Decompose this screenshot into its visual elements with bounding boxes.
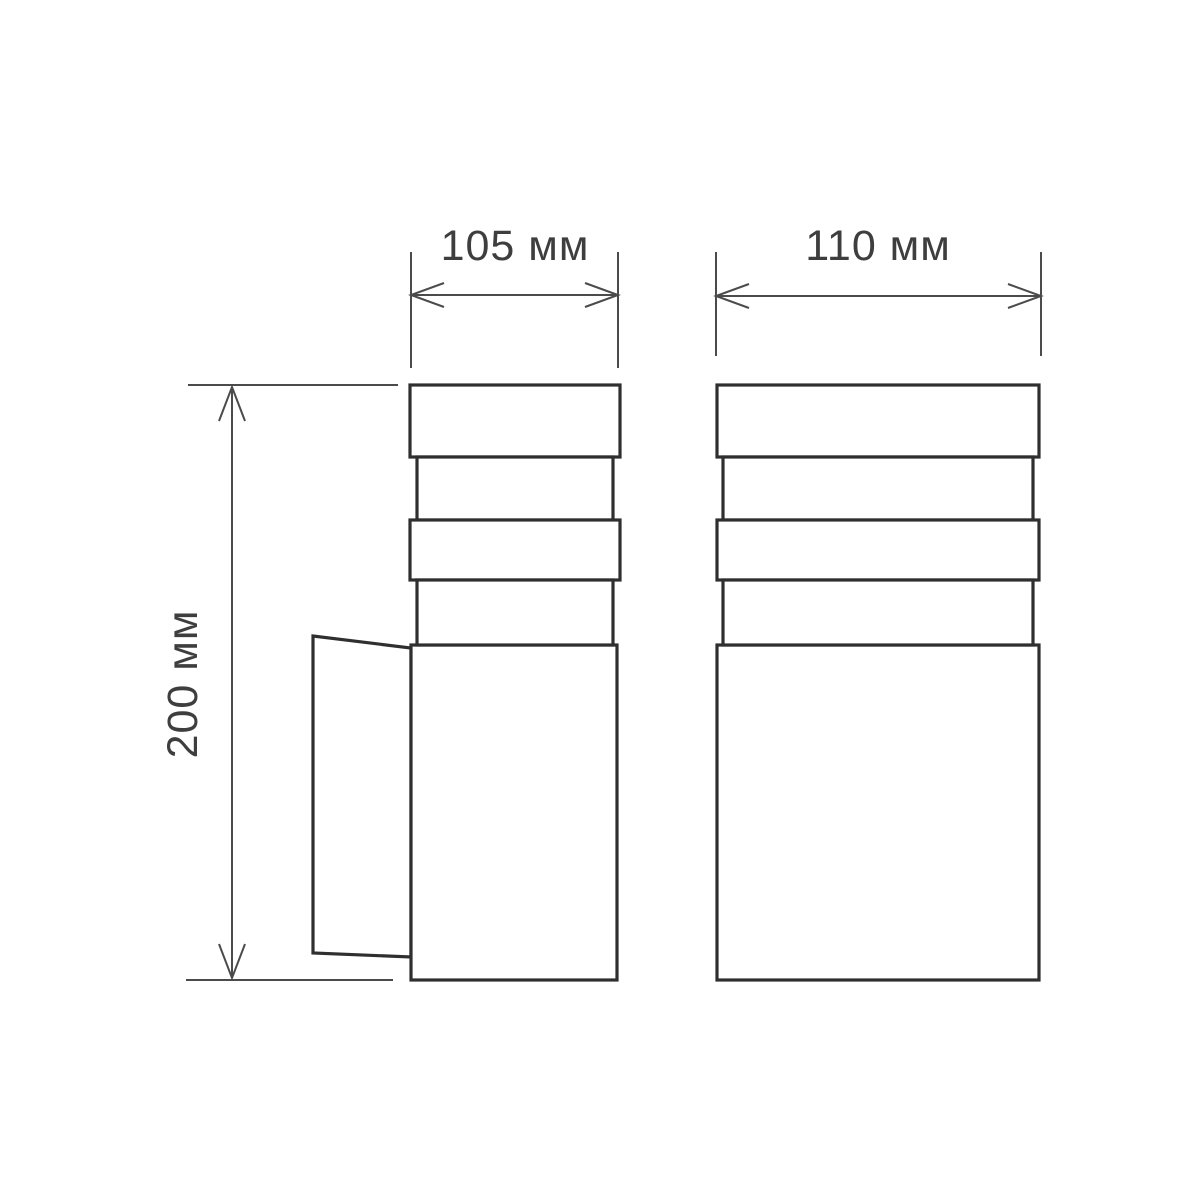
front-view-body — [717, 645, 1039, 980]
side-view-recessed-band-1 — [417, 457, 613, 520]
side-view-body — [411, 645, 617, 980]
object-outlines — [313, 385, 1039, 980]
side-view-louver-band — [410, 520, 620, 580]
front-view-top-cap — [717, 385, 1039, 457]
dimension-drawing: 105 мм 110 мм 200 мм — [0, 0, 1200, 1200]
front-view-recessed-band-1 — [723, 457, 1033, 520]
side-view-recessed-band-2 — [417, 580, 613, 645]
front-view — [717, 385, 1039, 980]
side-view — [313, 385, 620, 980]
drawing-canvas: 105 мм 110 мм 200 мм — [0, 0, 1200, 1200]
side-view-top-cap — [410, 385, 620, 457]
front-view-recessed-band-2 — [723, 580, 1033, 645]
side-view-wall-bracket — [313, 636, 411, 957]
dimension-label-height: 200 мм — [159, 610, 207, 759]
front-view-louver-band — [717, 520, 1039, 580]
dimension-label-front-width: 110 мм — [805, 222, 951, 270]
dimension-label-side-width: 105 мм — [441, 222, 590, 270]
